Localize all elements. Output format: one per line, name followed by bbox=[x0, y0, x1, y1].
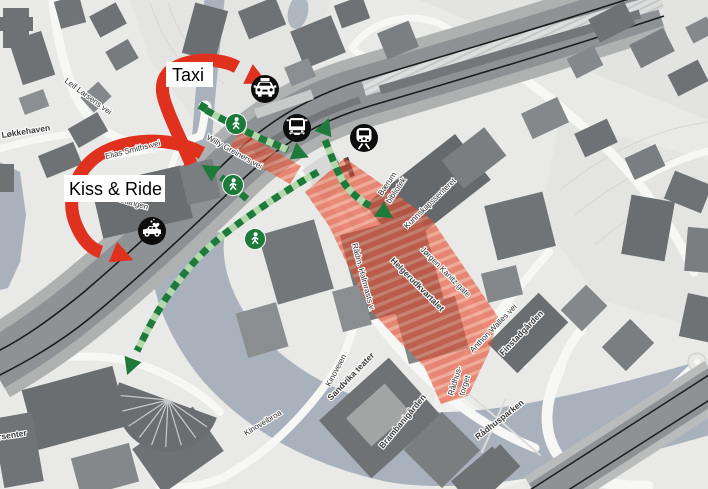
taxi-callout-label: Taxi bbox=[172, 65, 204, 85]
bus-icon bbox=[283, 114, 311, 142]
taxi-car-icon bbox=[251, 75, 279, 103]
kiss-and-ride-callout-label: Kiss & Ride bbox=[69, 179, 162, 199]
kiss-ride-car-icon bbox=[138, 217, 166, 245]
train-icon bbox=[350, 124, 378, 152]
map-canvas: Leif Larsens vei Løkkehaven Elias Smiths… bbox=[0, 0, 708, 489]
sandvika-access-map: Leif Larsens vei Løkkehaven Elias Smiths… bbox=[0, 0, 708, 489]
